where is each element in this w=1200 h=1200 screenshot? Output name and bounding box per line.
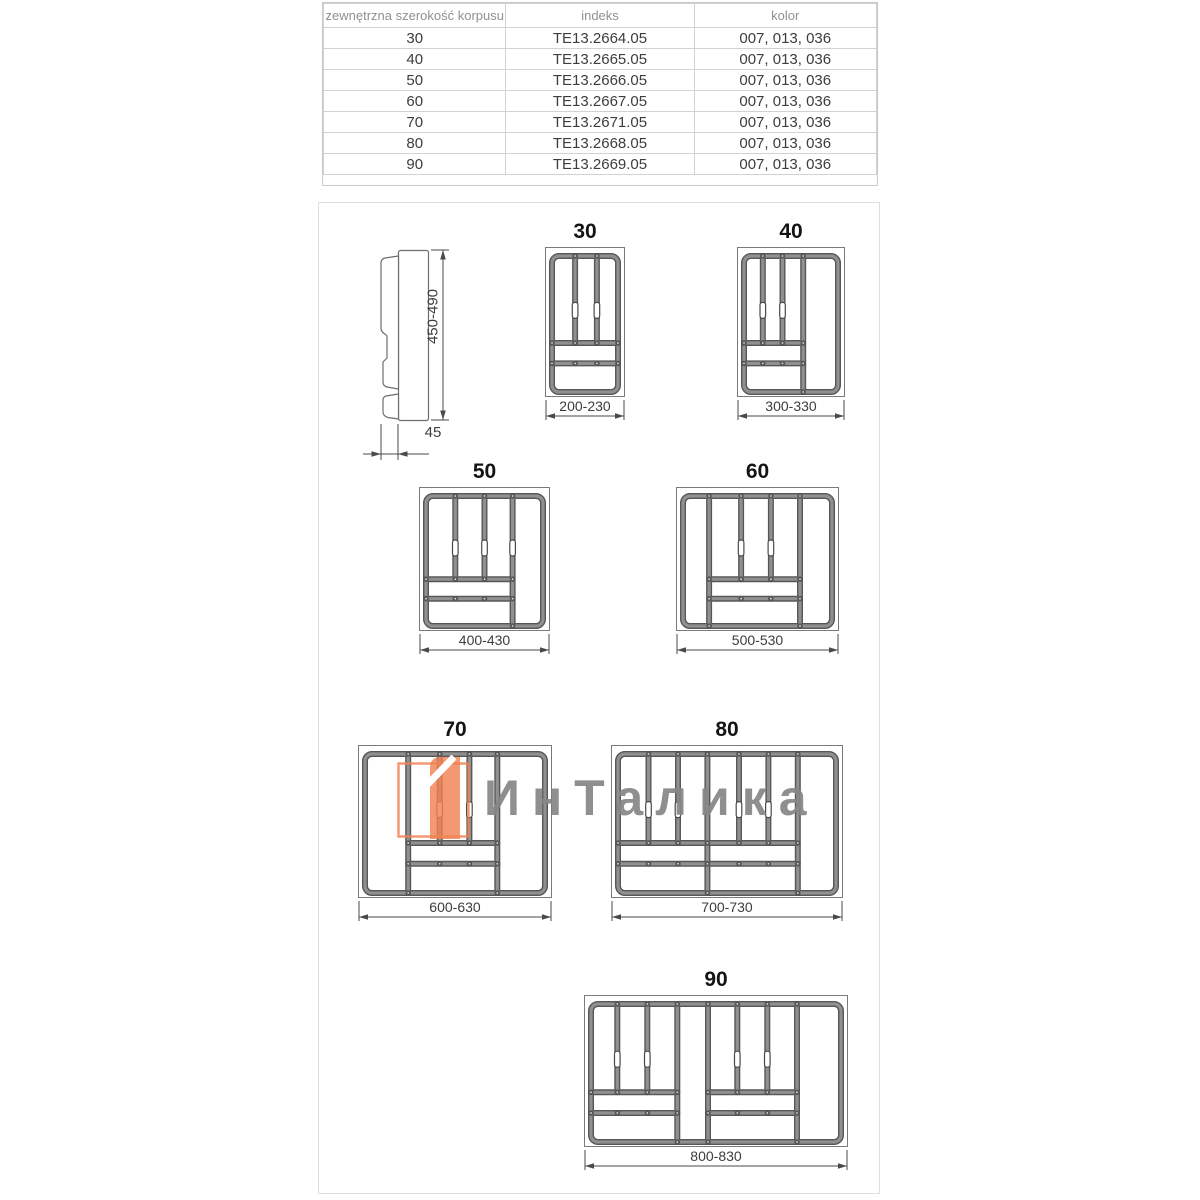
spec-header-row: zewnętrzna szerokość korpusu indeks kolo… bbox=[324, 4, 877, 28]
spec-cell: 007, 013, 036 bbox=[694, 154, 877, 175]
intalika-logo-icon bbox=[396, 752, 474, 844]
watermark: ИнТалика bbox=[396, 752, 819, 844]
spec-table-section: zewnętrzna szerokość korpusu indeks kolo… bbox=[322, 2, 878, 186]
tray-drawing-30: 30 200-230 bbox=[545, 219, 625, 423]
tray-size-label: 40 bbox=[737, 219, 845, 245]
spec-cell: 60 bbox=[324, 91, 506, 112]
tray-width-dimension: 800-830 bbox=[584, 1149, 848, 1164]
tray-size-label: 90 bbox=[584, 967, 848, 993]
spec-cell: TE13.2669.05 bbox=[506, 154, 694, 175]
spec-cell: TE13.2667.05 bbox=[506, 91, 694, 112]
spec-cell: TE13.2671.05 bbox=[506, 112, 694, 133]
tray-size-label: 50 bbox=[419, 459, 550, 485]
spec-cell: 007, 013, 036 bbox=[694, 112, 877, 133]
tray-drawing-90: 90 800-830 bbox=[584, 967, 848, 1173]
spec-cell: 007, 013, 036 bbox=[694, 91, 877, 112]
spec-cell: 80 bbox=[324, 133, 506, 154]
spec-cell: TE13.2666.05 bbox=[506, 70, 694, 91]
spec-row: 30TE13.2664.05007, 013, 036 bbox=[324, 28, 877, 49]
watermark-text: ИнТалика bbox=[484, 752, 819, 844]
spec-cell: 007, 013, 036 bbox=[694, 28, 877, 49]
tray-width-dimension: 400-430 bbox=[419, 633, 550, 648]
tray-width-dimension: 200-230 bbox=[545, 399, 625, 414]
spec-table: zewnętrzna szerokość korpusu indeks kolo… bbox=[323, 3, 877, 175]
spec-cell: TE13.2665.05 bbox=[506, 49, 694, 70]
tray-width-dimension: 600-630 bbox=[358, 900, 552, 915]
tray-drawing-40: 40 300-330 bbox=[737, 219, 845, 423]
tray-size-label: 60 bbox=[676, 459, 839, 485]
side-view-drawing: 450-490 45 bbox=[355, 242, 467, 470]
spec-cell: 007, 013, 036 bbox=[694, 49, 877, 70]
spec-row: 50TE13.2666.05007, 013, 036 bbox=[324, 70, 877, 91]
col-header-color: kolor bbox=[694, 4, 877, 28]
spec-cell: 30 bbox=[324, 28, 506, 49]
spec-row: 80TE13.2668.05007, 013, 036 bbox=[324, 133, 877, 154]
spec-cell: TE13.2664.05 bbox=[506, 28, 694, 49]
spec-cell: 007, 013, 036 bbox=[694, 70, 877, 91]
spec-cell: 40 bbox=[324, 49, 506, 70]
tray-width-dimension: 300-330 bbox=[737, 399, 845, 414]
col-header-width: zewnętrzna szerokość korpusu bbox=[324, 4, 506, 28]
side-height-dimension: 450-490 bbox=[425, 272, 442, 362]
spec-row: 90TE13.2669.05007, 013, 036 bbox=[324, 154, 877, 175]
spec-row: 70TE13.2671.05007, 013, 036 bbox=[324, 112, 877, 133]
spec-cell: 90 bbox=[324, 154, 506, 175]
spec-table-body: 30TE13.2664.05007, 013, 03640TE13.2665.0… bbox=[324, 28, 877, 175]
spec-row: 40TE13.2665.05007, 013, 036 bbox=[324, 49, 877, 70]
tray-size-label: 30 bbox=[545, 219, 625, 245]
side-depth-dimension: 45 bbox=[415, 424, 451, 441]
spec-cell: 50 bbox=[324, 70, 506, 91]
spec-cell: 007, 013, 036 bbox=[694, 133, 877, 154]
tray-drawing-50: 50 400-430 bbox=[419, 459, 550, 657]
spec-cell: 70 bbox=[324, 112, 506, 133]
tray-drawing-60: 60 500-530 bbox=[676, 459, 839, 657]
spec-row: 60TE13.2667.05007, 013, 036 bbox=[324, 91, 877, 112]
tray-size-label: 80 bbox=[611, 717, 843, 743]
tray-width-dimension: 700-730 bbox=[611, 900, 843, 915]
tray-size-label: 70 bbox=[358, 717, 552, 743]
page: { "spec_table": { "headers": ["zewnętrzn… bbox=[0, 0, 1200, 1200]
spec-cell: TE13.2668.05 bbox=[506, 133, 694, 154]
tray-width-dimension: 500-530 bbox=[676, 633, 839, 648]
col-header-index: indeks bbox=[506, 4, 694, 28]
